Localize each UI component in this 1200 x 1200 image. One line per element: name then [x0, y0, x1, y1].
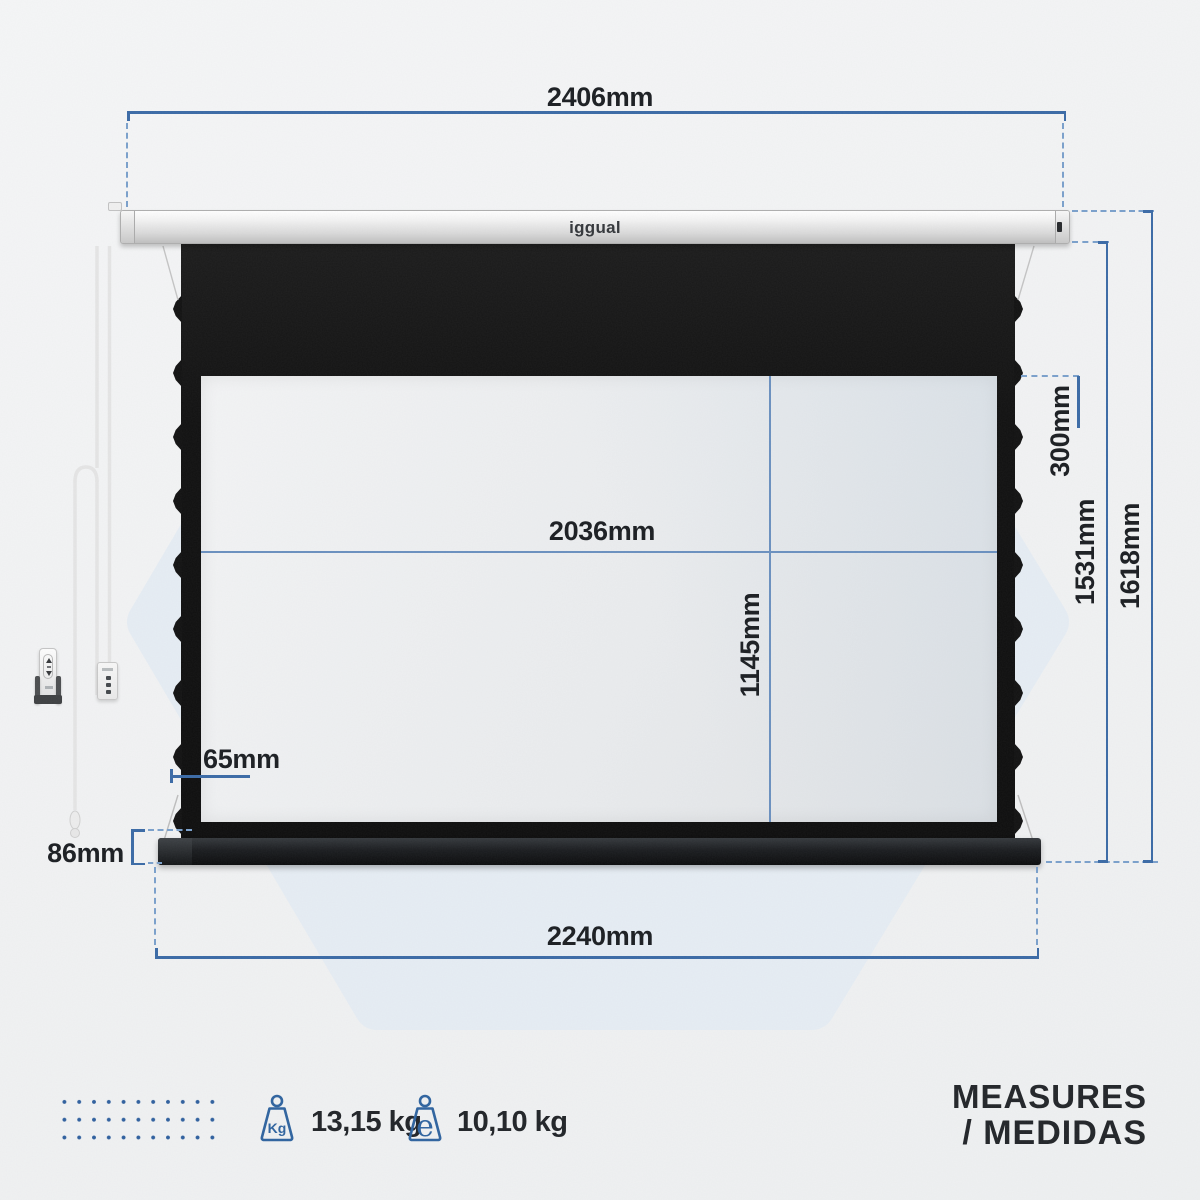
title-medidas: / MEDIDAS — [952, 1115, 1147, 1152]
up-arrow-icon — [46, 658, 52, 663]
dot-pattern — [55, 1091, 219, 1152]
dim-tick — [131, 829, 145, 832]
dim-line-bottom-width — [155, 956, 1039, 959]
dim-line-side-border — [170, 775, 250, 778]
dim-tick — [127, 111, 130, 121]
weight-kg-icon: Kg — [257, 1094, 297, 1144]
dim-bracket — [131, 829, 134, 865]
title-measures: MEASURES — [952, 1079, 1147, 1115]
weight-estimated-icon: e — [405, 1094, 445, 1144]
remote-button-cluster — [43, 654, 53, 679]
stop-icon — [47, 666, 51, 668]
dim-tick — [131, 863, 145, 866]
dim-tick — [155, 948, 158, 957]
switch-button — [106, 676, 111, 680]
down-arrow-icon — [46, 671, 52, 676]
remote-label — [45, 686, 53, 689]
brand-logo: iggual — [121, 218, 1069, 238]
dim-label-side-border: 65mm — [203, 744, 280, 775]
dim-label-total-height: 1618mm — [1115, 501, 1145, 611]
dim-extension — [148, 862, 162, 864]
casing-end-mark — [1057, 222, 1062, 232]
dim-label-top-drop: 300mm — [1045, 376, 1075, 486]
dim-tick — [1098, 860, 1108, 863]
wall-switch — [97, 662, 118, 700]
bottom-weight-bar — [158, 838, 1041, 865]
switch-label — [102, 668, 113, 671]
switch-button — [106, 690, 111, 694]
dim-label-viewing-height: 1145mm — [735, 590, 765, 700]
dim-extension — [1072, 210, 1154, 212]
dim-tick — [1064, 111, 1067, 121]
dim-tick — [170, 769, 173, 783]
product-measures-diagram: iggual — [0, 0, 1200, 1200]
dim-label-case-width: 2406mm — [540, 82, 660, 113]
dim-line-viewing-width — [201, 551, 997, 553]
dim-extension — [1036, 867, 1038, 945]
remote-cradle — [34, 695, 62, 704]
mount-bracket — [108, 202, 122, 211]
dim-extension — [1062, 123, 1064, 207]
dim-line-top-drop — [1077, 376, 1080, 428]
dim-line-total-height — [1151, 210, 1154, 862]
power-cord — [0, 0, 1200, 1200]
dim-line-fabric-height — [1106, 241, 1109, 862]
dim-extension — [126, 123, 128, 207]
estimated-icon-text: e — [416, 1109, 434, 1144]
dim-label-bottom-width: 2240mm — [540, 921, 660, 952]
net-weight-value: 10,10 kg — [457, 1106, 567, 1139]
remote-control — [39, 648, 57, 699]
dim-tick — [1143, 860, 1153, 863]
kg-icon-text: Kg — [268, 1120, 287, 1136]
switch-button — [106, 683, 111, 687]
dim-tick — [1037, 948, 1040, 957]
dim-extension — [154, 867, 156, 945]
dim-label-bar-height: 86mm — [40, 838, 124, 869]
dim-label-fabric-height: 1531mm — [1070, 497, 1100, 607]
dim-extension — [148, 829, 192, 831]
dim-label-viewing-width: 2036mm — [542, 516, 662, 547]
screen-casing: iggual — [120, 210, 1070, 244]
dim-line-viewing-height — [769, 376, 771, 822]
section-title: MEASURES / MEDIDAS — [952, 1079, 1147, 1151]
